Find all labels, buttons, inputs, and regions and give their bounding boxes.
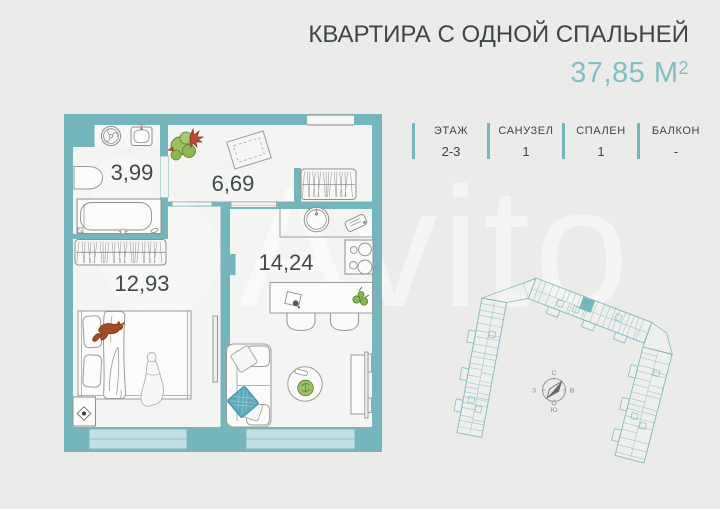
- svg-text:3,99: 3,99: [111, 160, 154, 185]
- svg-text:С: С: [552, 370, 557, 377]
- svg-text:6,69: 6,69: [212, 171, 255, 196]
- svg-text:В: В: [570, 388, 575, 395]
- svg-text:14,24: 14,24: [258, 250, 313, 275]
- svg-text:12,93: 12,93: [114, 271, 169, 296]
- svg-text:З: З: [532, 388, 536, 395]
- svg-text:Ю: Ю: [551, 407, 558, 414]
